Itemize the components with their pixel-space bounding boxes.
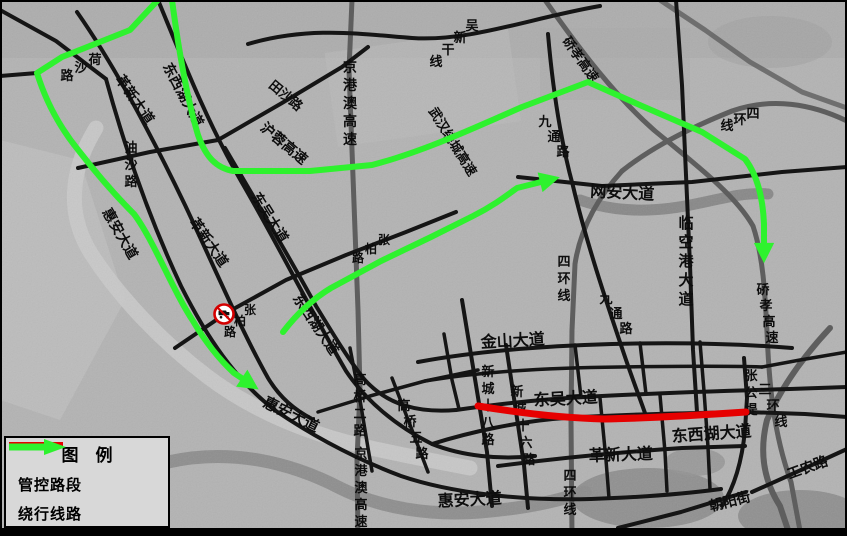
- road-label: 四环线: [563, 469, 576, 518]
- road-label: 京港澳高速: [343, 59, 358, 148]
- legend-item-detour: 绕行线路: [6, 503, 168, 524]
- truck-wheel-icon: [220, 316, 223, 319]
- road-label: 京港澳高速: [354, 446, 368, 530]
- legend-restricted-label: 管控路段: [18, 474, 82, 495]
- legend-detour-label: 绕行线路: [18, 503, 82, 524]
- no-trucks-sign-icon: [215, 305, 234, 324]
- road-label: 临空港大道: [678, 214, 694, 308]
- road-label: 网安大道: [590, 181, 655, 203]
- road-label: 金山大道: [479, 329, 545, 351]
- road-label: 革新大道: [588, 444, 653, 465]
- detour-swatch-arrowhead: [44, 439, 66, 455]
- legend: 图 例 管控路段 绕行线路: [4, 436, 170, 528]
- road-label: 东吴大道: [533, 387, 598, 409]
- traffic-control-map: 荷沙路革新大道东西湖大道油沙路田沙路沪蓉高速京港澳高速吴新干线硚孝高速武汉绕城高…: [0, 0, 847, 536]
- truck-cab-icon: [226, 312, 229, 315]
- road-label: 四环线: [557, 255, 570, 304]
- road-label: 惠安大道: [437, 488, 502, 510]
- legend-item-restricted: 管控路段: [6, 474, 168, 495]
- green-arrow-swatch: [6, 438, 68, 456]
- road-label: 油沙路: [124, 140, 138, 190]
